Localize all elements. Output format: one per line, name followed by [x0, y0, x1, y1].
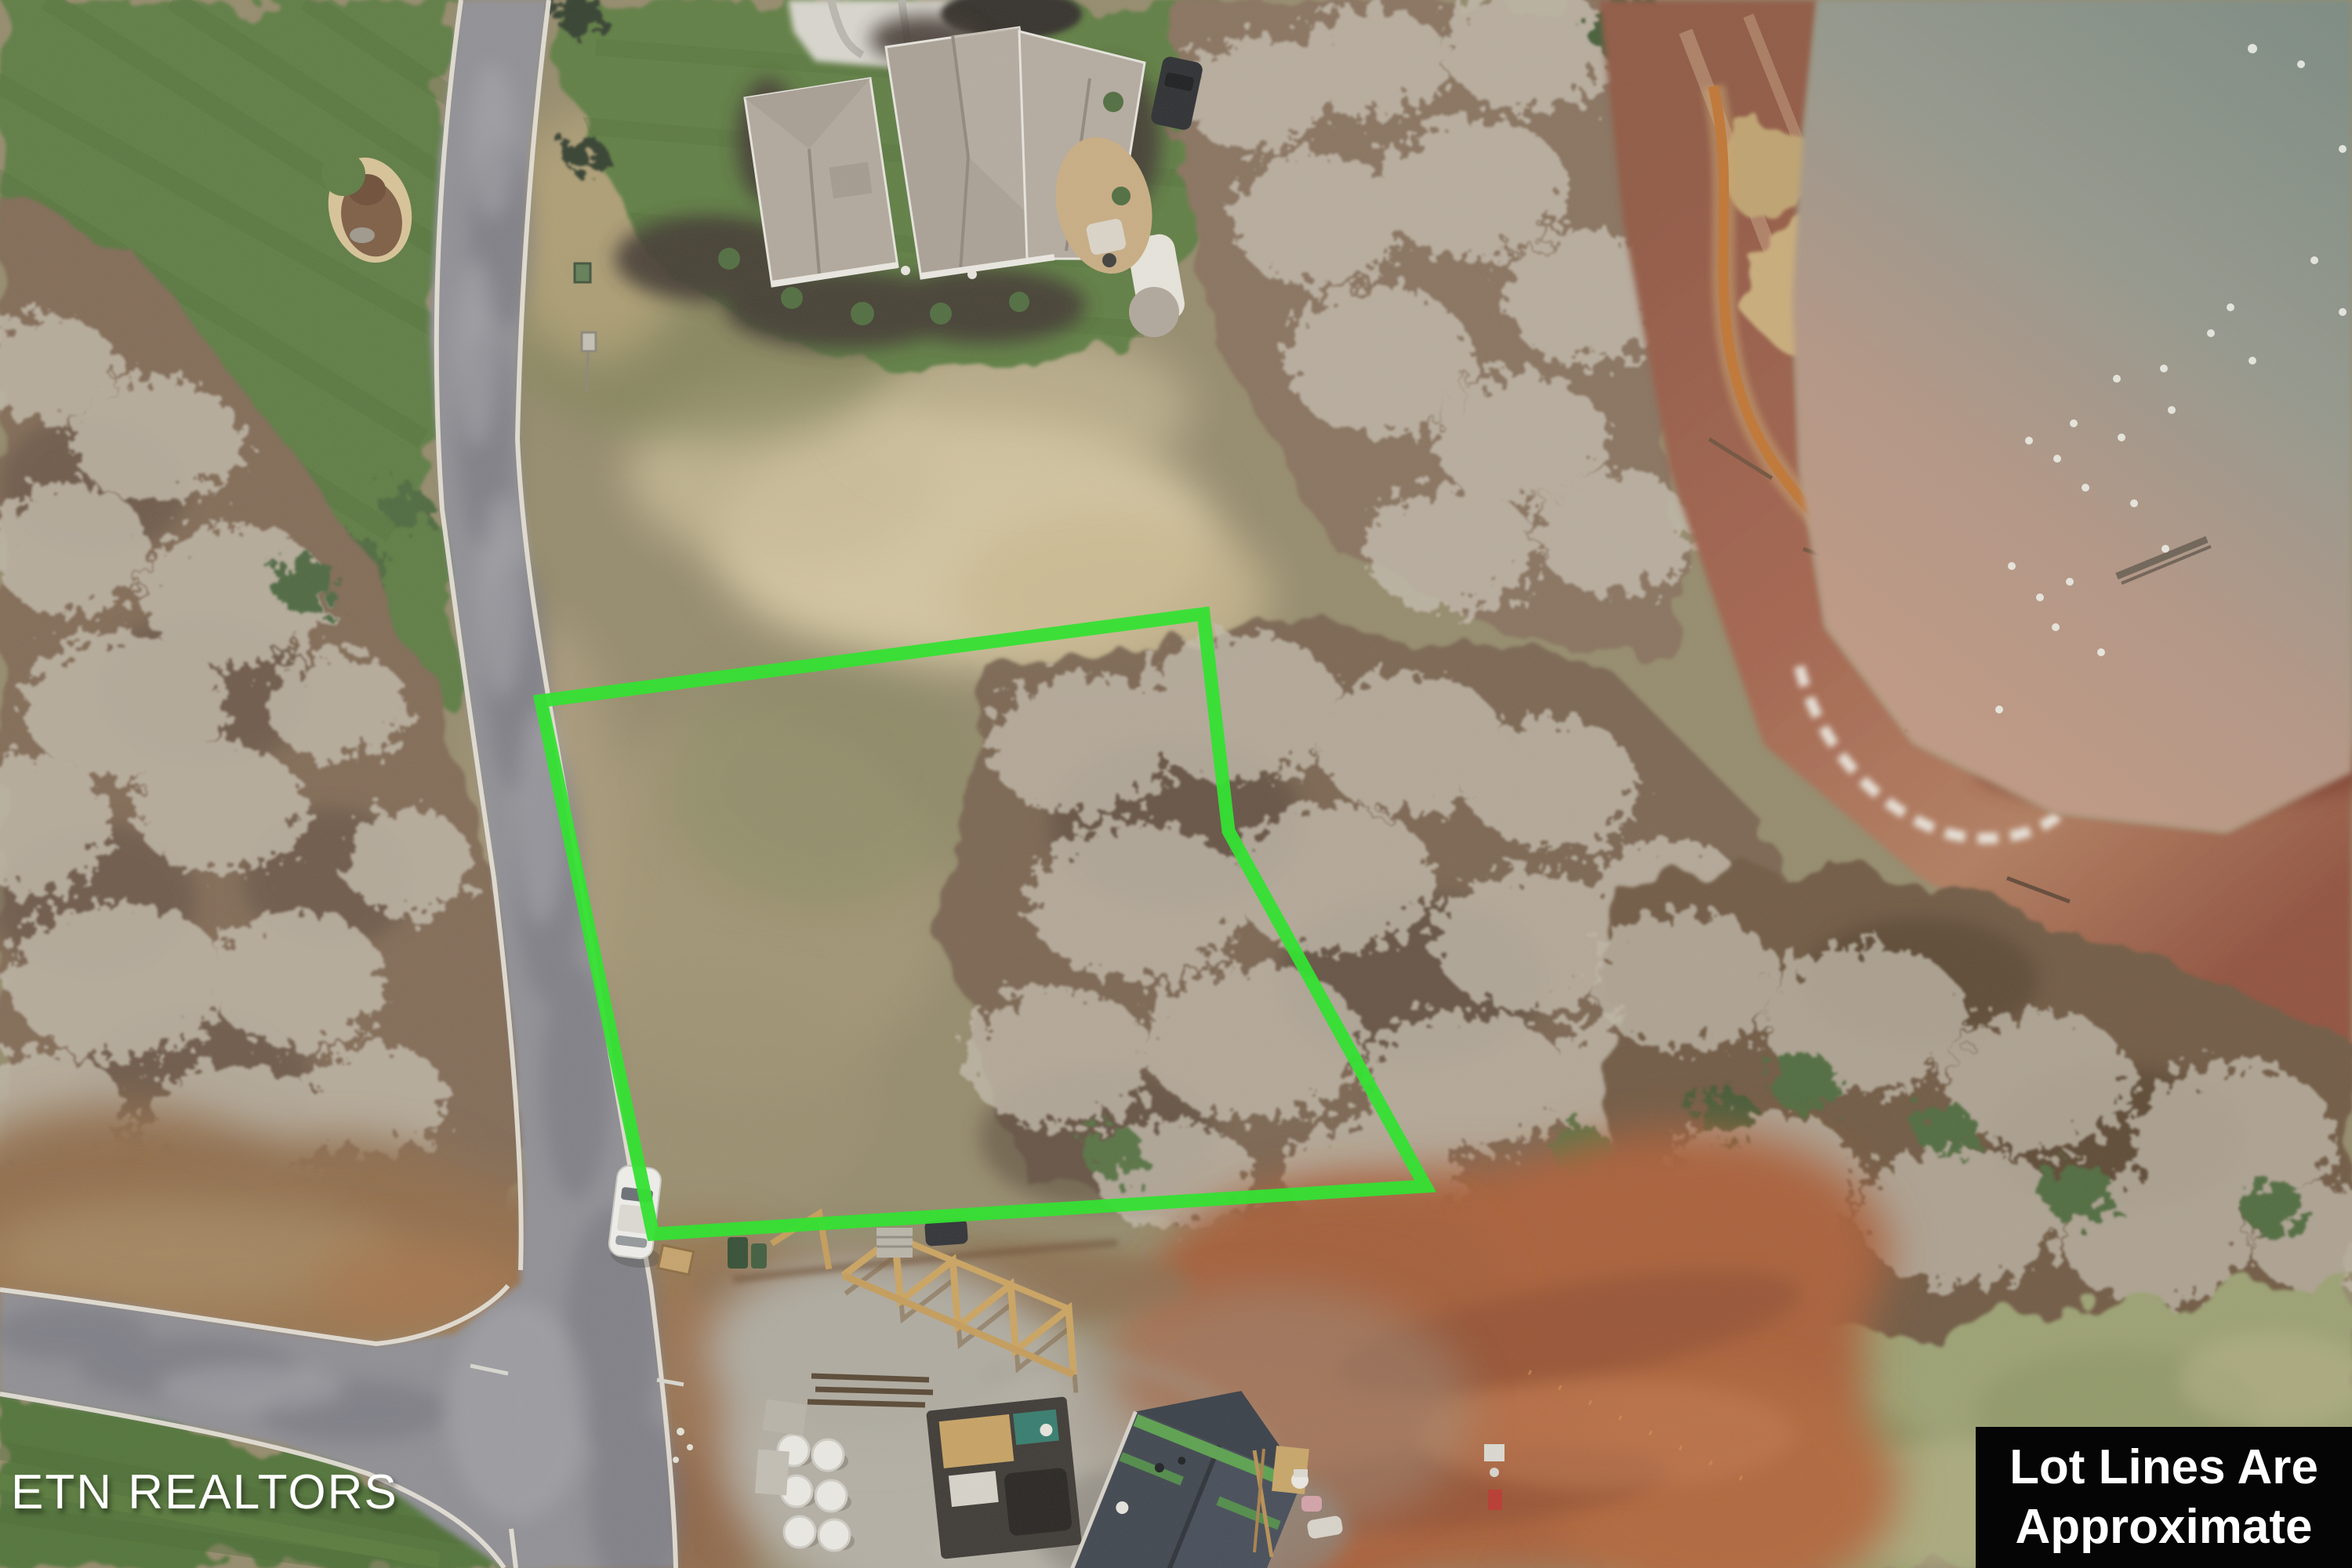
- disclaimer-box: Lot Lines Are Approximate: [1976, 1427, 2352, 1568]
- aerial-photo: ETN REALTORS Lot Lines Are Approximate: [0, 0, 2352, 1568]
- aerial-photo-canvas: [0, 0, 2352, 1568]
- disclaimer-line-2: Approximate: [1976, 1497, 2352, 1557]
- disclaimer-line-1: Lot Lines Are: [1976, 1438, 2352, 1497]
- watermark-text: ETN REALTORS: [11, 1465, 398, 1520]
- photo-grain: [0, 0, 2352, 1568]
